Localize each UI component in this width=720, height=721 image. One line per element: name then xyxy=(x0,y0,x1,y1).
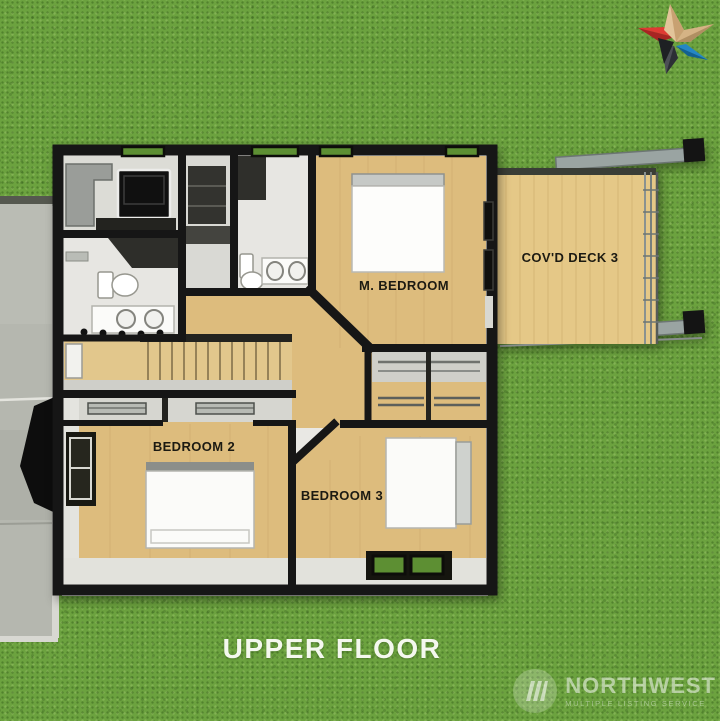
bed xyxy=(146,462,254,471)
mls-watermark: NORTHWEST MULTIPLE LISTING SERVICE xyxy=(513,669,716,713)
toilet xyxy=(98,272,113,298)
staircase xyxy=(64,334,292,392)
room-label-covered-deck: COV'D DECK 3 xyxy=(522,250,619,265)
linen-closets xyxy=(372,352,486,420)
walk-in-closet xyxy=(184,156,236,292)
bedroom-3: BEDROOM 3 xyxy=(292,424,486,584)
window xyxy=(366,551,452,580)
floor-plan-rendering: COV'D DECK 3 xyxy=(0,0,720,721)
room-label-bedroom-3: BEDROOM 3 xyxy=(301,488,383,503)
mls-watermark-tagline: MULTIPLE LISTING SERVICE xyxy=(565,700,716,708)
covered-deck: COV'D DECK 3 xyxy=(492,138,705,346)
deck-railing xyxy=(643,172,659,344)
house-upper-floor: M. BEDROOM xyxy=(58,147,493,596)
star-logo xyxy=(630,2,718,80)
mls-watermark-name: NORTHWEST xyxy=(565,675,716,697)
floor-plan-image: COV'D DECK 3 xyxy=(0,0,720,721)
page-title: UPPER FLOOR xyxy=(223,633,442,665)
bed xyxy=(386,438,456,528)
bed xyxy=(352,174,444,186)
washer-appliance xyxy=(118,170,170,218)
room-label-master-bedroom: M. BEDROOM xyxy=(359,278,449,293)
laundry-room xyxy=(64,156,180,234)
star-blue-arm xyxy=(676,44,708,60)
master-bathroom xyxy=(236,156,310,292)
mls-logo-icon xyxy=(513,669,557,713)
deck-door xyxy=(485,296,493,328)
bathroom xyxy=(64,238,180,338)
bedroom-2-closet xyxy=(79,398,292,422)
room-label-bedroom-2: BEDROOM 2 xyxy=(153,439,235,454)
